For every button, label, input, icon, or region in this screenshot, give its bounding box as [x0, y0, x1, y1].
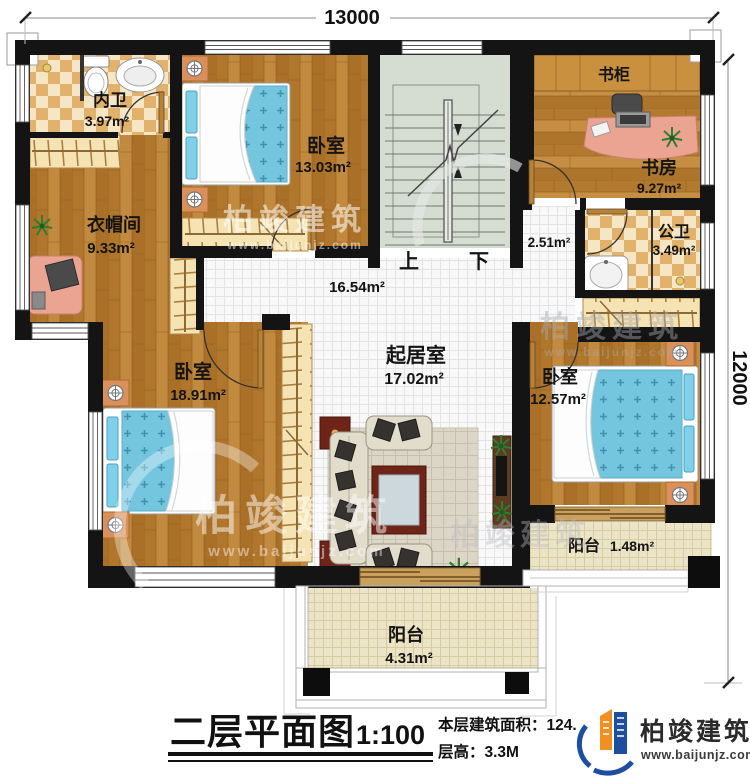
title-block: 二层平面图 1:100 本层建筑面积：124. 层高：3.3M [168, 711, 577, 762]
logo-swoosh-icon [579, 726, 590, 766]
cushion-icon [398, 419, 420, 441]
room-label-bookcase: 书柜 [598, 65, 630, 84]
room-area-bedroom-right: 12.57m² [530, 391, 586, 408]
window [701, 223, 714, 289]
pillow-icon [186, 91, 197, 133]
room-area-hall-small: 2.51m² [528, 235, 571, 250]
window [135, 567, 275, 587]
window [16, 65, 29, 122]
brand-logo: 柏竣建筑 www.baijunjz.com [579, 709, 750, 773]
plan-title: 二层平面图 [170, 711, 355, 752]
room-area-cloakroom: 9.33m² [87, 240, 135, 257]
floor-drain-icon [676, 277, 684, 285]
window [701, 95, 714, 185]
room-area-balcony-right: 1.48m² [610, 538, 655, 554]
brand-name: 柏竣建筑 [640, 717, 750, 746]
floor-height-text: 层高：3.3M [438, 742, 519, 761]
room-area-inner-bath: 3.97m² [85, 113, 130, 129]
window [205, 41, 330, 54]
window [701, 353, 714, 479]
title-underline-thin [168, 760, 433, 762]
room-area-study: 9.27m² [637, 180, 682, 196]
toilet-tank-icon [83, 56, 109, 67]
watermark-url: www.baijunjz.com [226, 238, 363, 252]
dimension-right-value: 12000 [728, 350, 750, 406]
speaker-icon [32, 292, 45, 309]
watermark-url: www.baijunjz.com [207, 543, 385, 560]
wardrobe-icon [170, 258, 200, 334]
stairs-down-label: 下 [469, 251, 489, 273]
hall-small-floor [523, 206, 575, 258]
room-label-cloakroom: 衣帽间 [87, 214, 141, 235]
room-label-bedroom-top: 卧室 [307, 134, 345, 157]
brand-url: www.baijunjz.com [640, 748, 750, 762]
watermark-url: www.baijunjz.com [543, 345, 680, 359]
dimension-top-value: 13000 [324, 7, 380, 29]
pillow-icon [684, 374, 694, 420]
stairs-up-label: 上 [399, 250, 419, 273]
window [89, 412, 102, 530]
floor-drain-icon [43, 64, 51, 72]
window [16, 205, 29, 310]
room-area-bedroom-top: 13.03m² [295, 159, 351, 176]
room-label-bedroom-right: 卧室 [542, 366, 578, 387]
window [402, 41, 482, 54]
room-area-hallway: 16.54m² [329, 279, 385, 296]
tv-icon [496, 456, 507, 496]
floor-plan-page: 内卫 3.97m² 卧室 13.03m² 书柜 书房 9.27m² 公卫 3.4… [0, 0, 750, 777]
watermark-text: 柏竣建筑 [195, 492, 395, 539]
plan-scale: 1:100 [356, 720, 425, 750]
pillow-icon [107, 464, 118, 507]
office-chair-icon [612, 94, 642, 114]
room-label-living: 起居室 [385, 343, 446, 367]
watermark-text: 柏竣建筑 [223, 203, 367, 237]
title-underline [168, 752, 433, 756]
logo-building-icon [600, 709, 612, 750]
watermark-text: 柏竣建筑 [540, 310, 684, 344]
room-label-balcony-bottom: 阳台 [388, 624, 424, 645]
cushion-icon [336, 470, 356, 490]
room-label-bedroom-left: 卧室 [174, 360, 212, 383]
pillow-icon [684, 426, 694, 472]
room-area-public-bath: 3.49m² [653, 243, 696, 258]
room-label-inner-bath: 内卫 [93, 90, 127, 110]
room-label-study: 书房 [641, 157, 677, 178]
sliding-door-icon [360, 568, 480, 586]
dimension-top: 13000 [20, 6, 719, 44]
room-area-living: 17.02m² [384, 371, 444, 388]
pillow-icon [107, 417, 118, 460]
wardrobe-icon [30, 135, 120, 168]
room-label-public-bath: 公卫 [658, 223, 690, 241]
watermark-text: 柏竣建筑 [450, 518, 590, 552]
logo-swoosh-icon [594, 762, 632, 773]
floor-plan-drawing: 内卫 3.97m² 卧室 13.03m² 书柜 书房 9.27m² 公卫 3.4… [0, 0, 750, 777]
room-area-bedroom-left: 18.91m² [170, 387, 226, 404]
window [32, 323, 88, 339]
pillow-icon [186, 137, 197, 179]
floor-area-text: 本层建筑面积：124. [438, 715, 577, 734]
room-area-balcony-bottom: 4.31m² [385, 650, 433, 667]
